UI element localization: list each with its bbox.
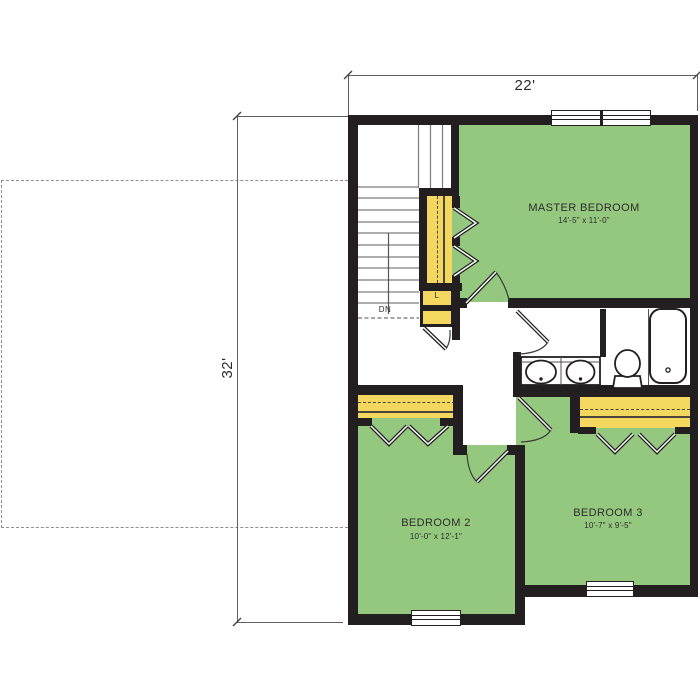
room-size-bedroom-2: 10'-0" x 12'-1" [366, 532, 506, 541]
closet-shelf [580, 416, 690, 418]
closet-rod [358, 402, 455, 403]
first-floor-outline [1, 180, 348, 528]
wall [459, 298, 467, 308]
sink-icon [567, 361, 595, 384]
dimension-height-label: 32' [219, 346, 237, 390]
wall [452, 196, 460, 208]
dimension-width-label: 22' [500, 77, 550, 94]
wall [515, 445, 525, 585]
window-line [587, 586, 633, 587]
linen-closet-lower [420, 308, 454, 327]
dimension-extension [348, 75, 349, 115]
wall [348, 385, 463, 395]
wall [348, 115, 358, 625]
sink-icon [526, 361, 556, 384]
wall [440, 418, 455, 426]
window-line [412, 619, 460, 620]
dimension-line-top [348, 75, 697, 76]
wall [508, 298, 690, 308]
toilet-icon [615, 350, 640, 377]
vanity-counter [521, 357, 600, 385]
wall [515, 585, 525, 625]
wall [453, 445, 467, 455]
linen-closet-door [424, 328, 446, 349]
bathtub-icon [650, 309, 686, 383]
room-label-bedroom-2: BEDROOM 2 [366, 517, 506, 530]
window-bedroom-3 [586, 581, 634, 597]
dimension-line-left [237, 116, 238, 622]
wall [600, 309, 606, 357]
room-size-master-bedroom: 14'-5" x 11'-0" [504, 216, 664, 225]
wall [690, 115, 698, 597]
room-size-bedroom-3: 10'-7" x 9'-5" [538, 521, 678, 530]
closet-rod [437, 196, 438, 283]
window-master-bedroom [551, 110, 651, 126]
room-label-master-bedroom: MASTER BEDROOM [504, 202, 664, 215]
dimension-extension [697, 75, 698, 111]
dimension-extension [237, 116, 348, 117]
wall [452, 237, 460, 246]
room-label-bedroom-3: BEDROOM 3 [538, 507, 678, 520]
closet-shelf [358, 411, 455, 413]
wall [675, 427, 692, 434]
closet-rod [580, 409, 690, 410]
closet-shelf [443, 196, 445, 283]
window-line [587, 590, 633, 591]
window-line [412, 615, 460, 616]
wall [419, 188, 459, 196]
linen-closet-label: L [423, 291, 451, 300]
bathroom-door [517, 311, 548, 342]
bedroom-3-closet [580, 397, 690, 428]
window-mullion [600, 111, 603, 125]
stairs-down-label: DN [371, 305, 399, 314]
dimension-extension [237, 622, 343, 623]
master-closet [427, 196, 452, 283]
wall [358, 418, 372, 426]
tub-drain [666, 368, 670, 372]
wall [419, 188, 427, 291]
bedroom-2-closet [358, 395, 455, 418]
wall [513, 385, 698, 397]
wall [451, 125, 459, 196]
hallway [463, 395, 515, 445]
wall [578, 427, 596, 434]
window-bedroom-2 [411, 610, 461, 626]
floor-plan: 22' 32' MASTER BEDROOM 14'-5" x 11'-0" B… [0, 0, 700, 700]
